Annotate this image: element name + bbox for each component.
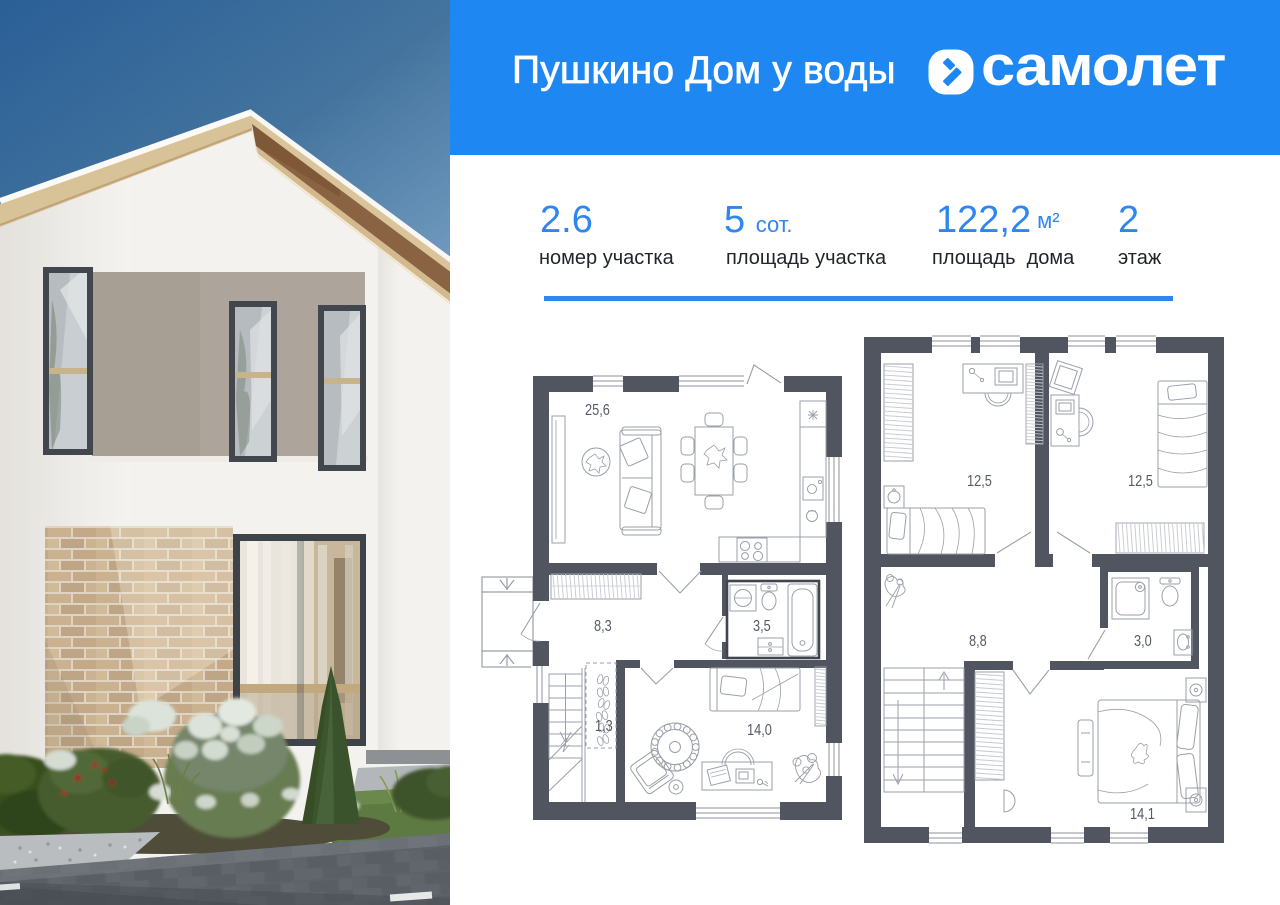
svg-text:25,6: 25,6: [585, 402, 610, 420]
svg-text:8,8: 8,8: [969, 633, 987, 651]
svg-text:3,0: 3,0: [1134, 633, 1152, 651]
svg-text:8,3: 8,3: [594, 618, 612, 636]
svg-text:1,3: 1,3: [595, 718, 613, 736]
svg-text:3,5: 3,5: [753, 618, 771, 636]
svg-text:12,5: 12,5: [1128, 473, 1153, 491]
svg-text:12,5: 12,5: [967, 473, 992, 491]
svg-text:14,1: 14,1: [1130, 806, 1155, 824]
svg-text:14,0: 14,0: [747, 722, 772, 740]
